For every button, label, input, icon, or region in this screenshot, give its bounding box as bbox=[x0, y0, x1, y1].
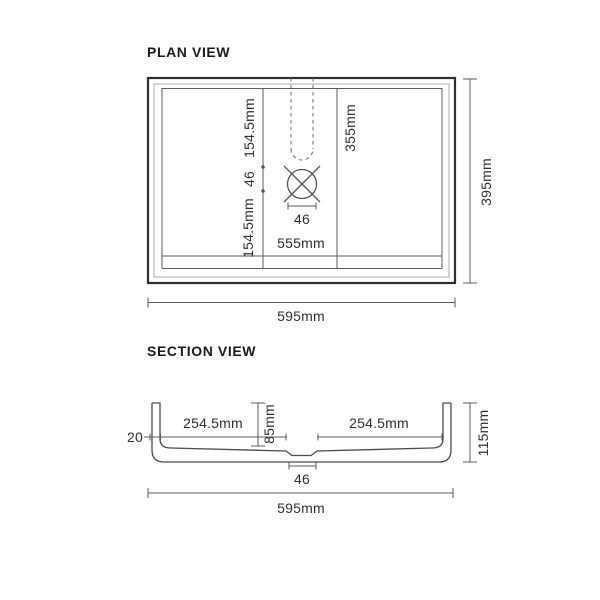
plan-bowl-width-dim-line bbox=[162, 252, 442, 260]
tap-hole-dashed-outline bbox=[291, 78, 313, 160]
dim-label-section-recess-width: 46 bbox=[294, 471, 310, 487]
section-outer-profile bbox=[152, 403, 451, 462]
plan-drain-width-dim-line bbox=[288, 203, 316, 210]
dim-label-plan-drain-gap-vertical: 46 bbox=[241, 171, 257, 187]
plan-left-dim-line bbox=[261, 89, 265, 269]
dim-label-plan-bowl-width: 555mm bbox=[277, 235, 325, 251]
section-left-rim-tab bbox=[152, 403, 160, 413]
dim-label-plan-overall-width: 595mm bbox=[277, 308, 325, 324]
plan-view-drawing bbox=[148, 78, 477, 308]
dim-label-section-overall-height: 115mm bbox=[475, 410, 491, 457]
technical-drawing-sheet: PLAN VIEW 154.5mm 46 154.5mm 355mm 46 55… bbox=[0, 0, 600, 600]
dim-label-plan-overall-depth: 395mm bbox=[478, 158, 494, 206]
section-right-rim-tab bbox=[443, 403, 451, 413]
drain-symbol bbox=[284, 166, 320, 202]
dim-label-section-overall-width: 595mm bbox=[277, 500, 325, 516]
dim-label-plan-top-offset: 154.5mm bbox=[241, 98, 257, 158]
plan-overall-depth-dim-line bbox=[463, 79, 477, 283]
dim-label-plan-bottom-offset: 154.5mm bbox=[240, 198, 256, 258]
dim-label-plan-drain-width: 46 bbox=[294, 211, 310, 227]
plan-outer-rim-rect bbox=[148, 78, 455, 283]
plan-overall-width-dim-line bbox=[148, 298, 455, 308]
dim-label-section-inner-depth: 85mm bbox=[261, 404, 277, 444]
dim-label-section-right-run: 254.5mm bbox=[349, 415, 409, 431]
section-view-title: SECTION VIEW bbox=[147, 343, 256, 359]
dim-label-plan-bowl-depth: 355mm bbox=[342, 104, 358, 152]
dim-label-section-rim-thickness: 20 bbox=[127, 429, 143, 445]
dim-label-section-left-run: 254.5mm bbox=[183, 415, 243, 431]
plan-view-title: PLAN VIEW bbox=[147, 44, 230, 60]
